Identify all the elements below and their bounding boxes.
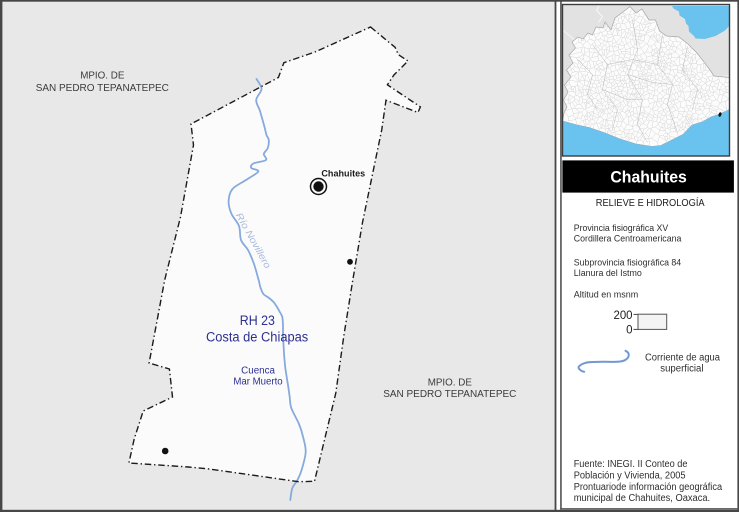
svg-text:Mar Muerto: Mar Muerto bbox=[233, 376, 283, 387]
svg-text:Fuente: INEGI. II Conteo de: Fuente: INEGI. II Conteo de bbox=[574, 459, 688, 470]
svg-text:Costa de Chiapas: Costa de Chiapas bbox=[206, 329, 309, 344]
svg-text:MPIO. DE: MPIO. DE bbox=[428, 378, 473, 389]
svg-text:Corriente de agua: Corriente de agua bbox=[645, 352, 720, 363]
svg-text:200: 200 bbox=[614, 310, 633, 322]
svg-text:RH 23: RH 23 bbox=[240, 313, 275, 328]
svg-text:MPIO. DE: MPIO. DE bbox=[80, 71, 125, 82]
svg-text:Población y Vivienda, 2005: Población y Vivienda, 2005 bbox=[574, 470, 686, 481]
svg-text:Llanura del Istmo: Llanura del Istmo bbox=[574, 268, 642, 279]
svg-text:superficial: superficial bbox=[660, 364, 703, 375]
svg-text:Subprovincia fisiográfica 84: Subprovincia fisiográfica 84 bbox=[574, 257, 682, 268]
svg-text:RELIEVE E HIDROLOGÍA: RELIEVE E HIDROLOGÍA bbox=[596, 196, 705, 209]
svg-text:SAN PEDRO TEPANATEPEC: SAN PEDRO TEPANATEPEC bbox=[383, 389, 516, 400]
svg-text:SAN PEDRO TEPANATEPEC: SAN PEDRO TEPANATEPEC bbox=[36, 83, 169, 94]
svg-text:0: 0 bbox=[626, 325, 632, 337]
svg-text:Cuenca: Cuenca bbox=[241, 365, 275, 376]
svg-text:Cordillera Centroamericana: Cordillera Centroamericana bbox=[574, 233, 682, 244]
svg-text:municipal de Chahuites, Oaxaca: municipal de Chahuites, Oaxaca. bbox=[574, 493, 710, 504]
svg-text:Chahuites: Chahuites bbox=[321, 169, 365, 180]
svg-text:Chahuites: Chahuites bbox=[610, 168, 687, 187]
svg-text:Prontuariode información geogr: Prontuariode información geográfica bbox=[574, 482, 723, 493]
svg-text:Altitud en msnm: Altitud en msnm bbox=[574, 289, 638, 300]
